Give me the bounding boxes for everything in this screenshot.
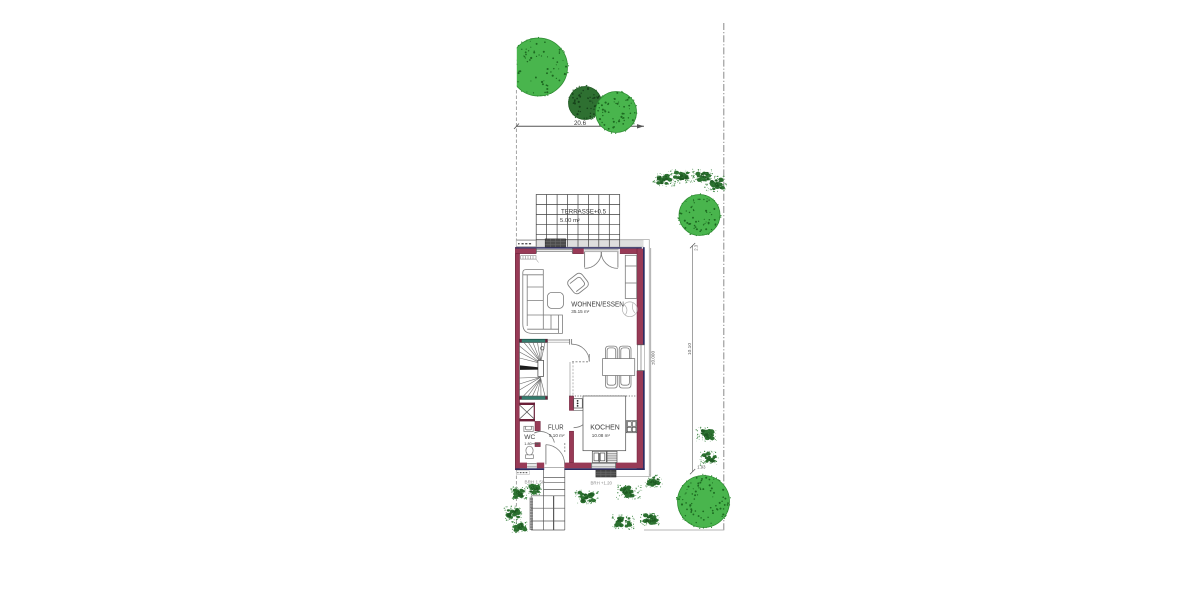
- svg-text:FLUR: FLUR: [548, 424, 564, 431]
- svg-text:5.10 m²: 5.10 m²: [549, 433, 565, 438]
- svg-text:1.93: 1.93: [697, 465, 706, 470]
- svg-text:1.80: 1.80: [524, 442, 531, 446]
- svg-text:TERRASSE+0.5: TERRASSE+0.5: [561, 209, 606, 216]
- svg-text:BRH 1.50: BRH 1.50: [525, 479, 546, 484]
- svg-text:KOCHEN: KOCHEN: [590, 424, 620, 431]
- svg-text:20.6: 20.6: [574, 120, 587, 127]
- svg-text:±0.000: ±0.000: [651, 351, 656, 365]
- svg-text:WOHNEN/ESSEN: WOHNEN/ESSEN: [571, 301, 624, 308]
- svg-text:10.08 m²: 10.08 m²: [592, 433, 611, 438]
- svg-text:5.00 m²: 5.00 m²: [560, 218, 580, 224]
- svg-text:10.10: 10.10: [687, 343, 693, 355]
- svg-text:2.3: 2.3: [694, 244, 699, 250]
- svg-text:35.15 m²: 35.15 m²: [571, 309, 590, 314]
- svg-text:WC: WC: [524, 435, 536, 441]
- svg-text:BRH +1.20: BRH +1.20: [591, 481, 613, 486]
